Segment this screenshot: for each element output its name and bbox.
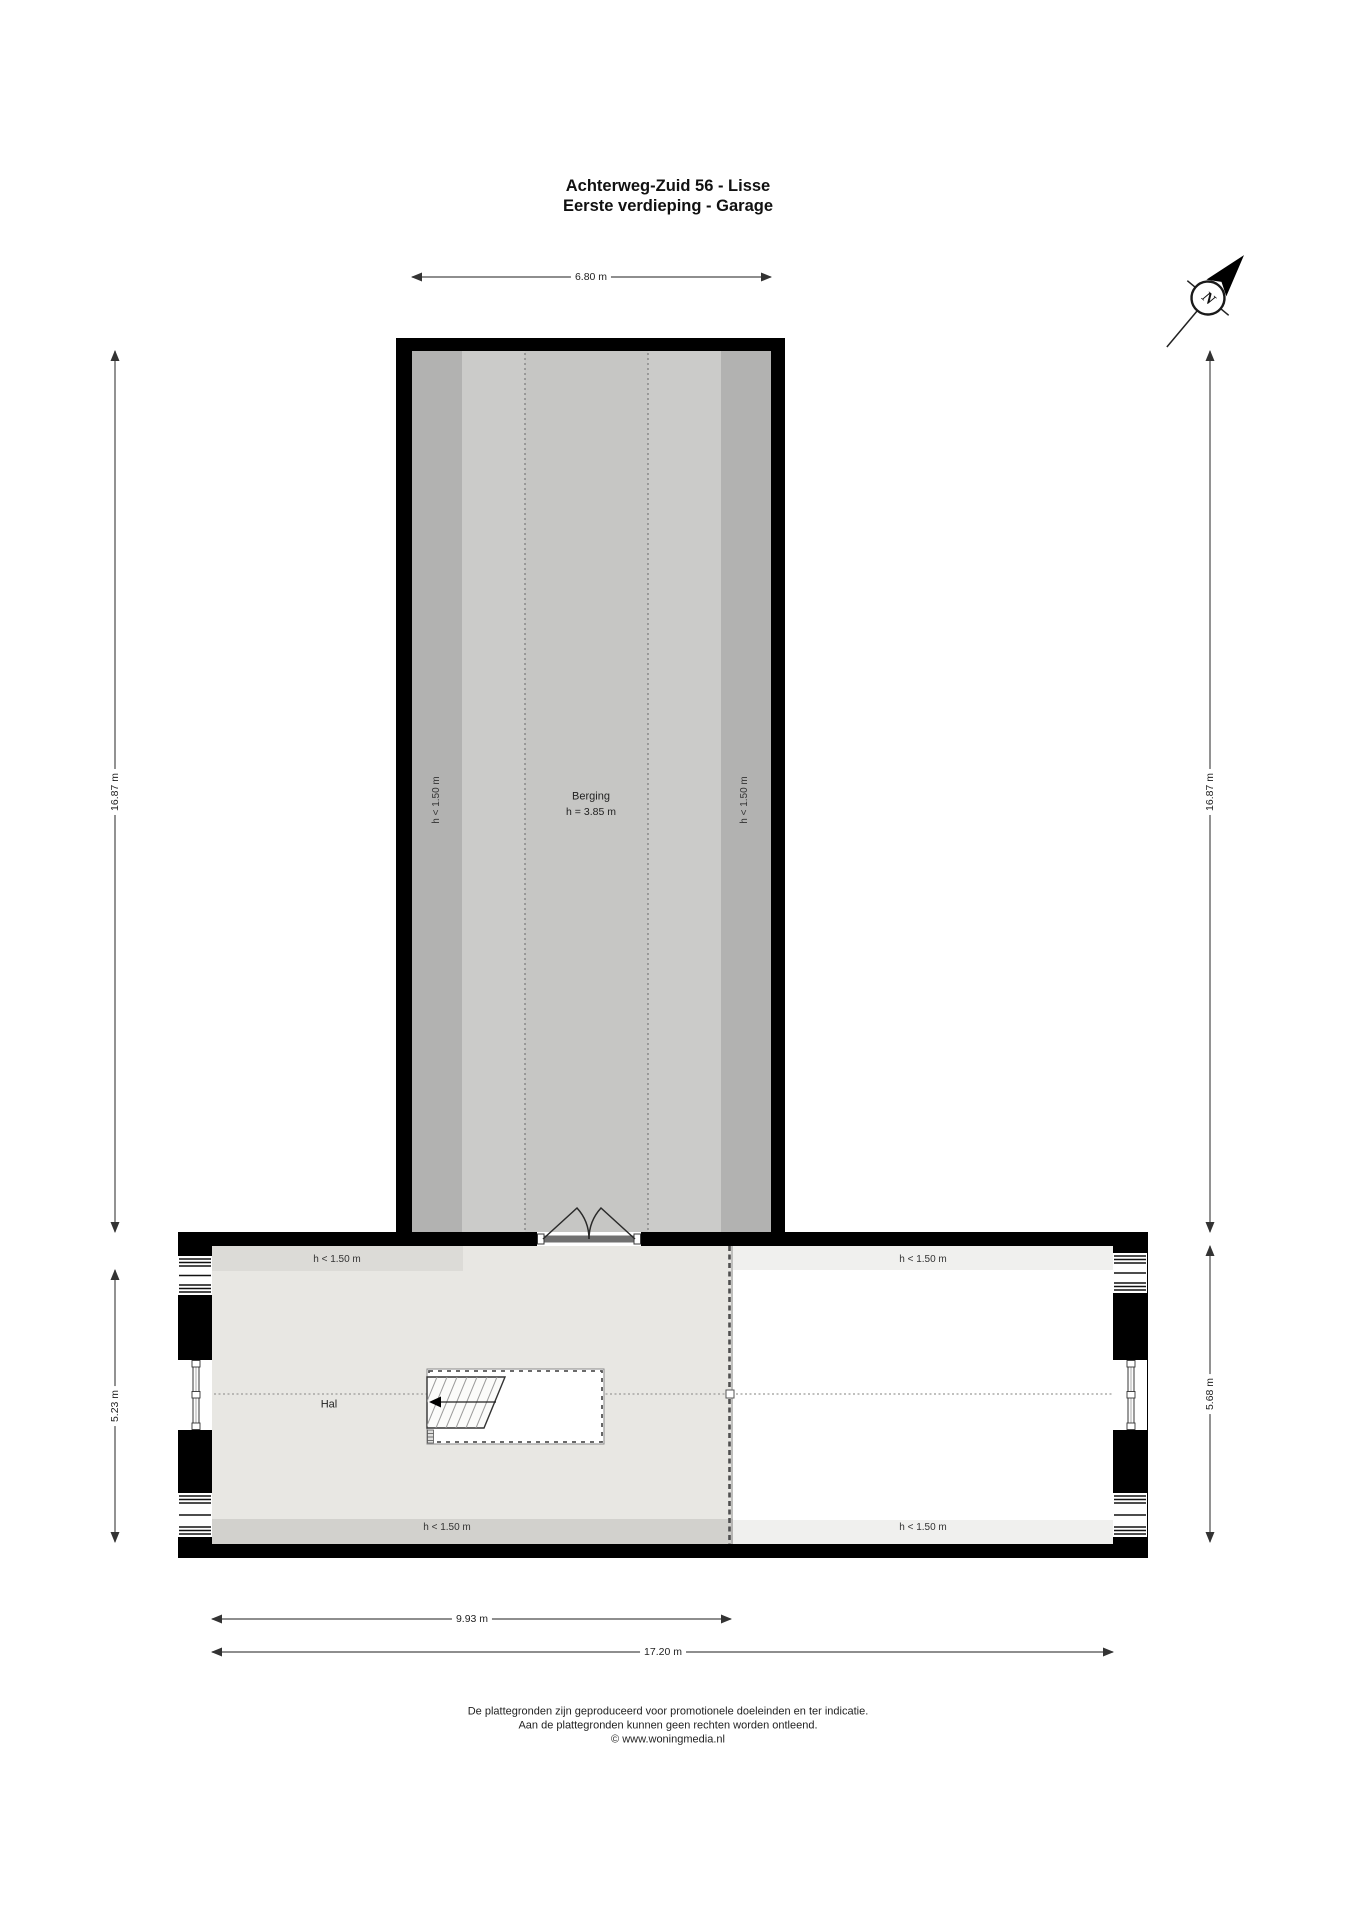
right-wall-window-top: [1113, 1253, 1147, 1293]
floor-plan-page: Achterweg-Zuid 56 - Lisse Eerste verdiep…: [0, 0, 1358, 1920]
berging-low-headroom-right: h < 1.50 m: [740, 776, 750, 824]
berging-ceiling-height-label: h = 3.85 m: [566, 807, 616, 818]
right-section-low-headroom-top: h < 1.50 m: [899, 1255, 947, 1265]
left-wall-window-bottom: [178, 1493, 212, 1537]
dim-label-berging-width: 6.80 m: [571, 271, 611, 284]
right-wall-door: [1113, 1360, 1147, 1430]
berging-room-label: Berging: [572, 792, 610, 803]
dim-label-right-lower: 5.68 m: [1204, 1374, 1217, 1414]
partition-node: [726, 1390, 734, 1398]
dim-label-right-upper: 16.87 m: [1204, 769, 1217, 815]
stairs: [416, 1369, 604, 1444]
hal-low-strip-bottom: [212, 1519, 733, 1544]
berging-low-headroom-left: h < 1.50 m: [432, 776, 442, 824]
right-wall-window-bottom: [1113, 1493, 1147, 1537]
dim-label-total-width: 17.20 m: [640, 1646, 686, 1659]
dim-label-left-lower: 5.23 m: [109, 1386, 122, 1426]
dim-label-left-upper: 16.87 m: [109, 769, 122, 815]
floor-plan-drawing: [0, 0, 1358, 1920]
right-section-low-headroom-bottom: h < 1.50 m: [899, 1523, 947, 1533]
footer-disclaimer-line1: De plattegronden zijn geproduceerd voor …: [468, 1707, 869, 1718]
compass-tail: [1167, 310, 1198, 347]
footer-copyright: © www.woningmedia.nl: [611, 1735, 725, 1746]
stair-newel: [428, 1430, 434, 1443]
footer-disclaimer-line2: Aan de plattegronden kunnen geen rechten…: [518, 1721, 817, 1732]
hal-low-headroom-top: h < 1.50 m: [313, 1255, 361, 1265]
dim-label-hal-width: 9.93 m: [452, 1613, 492, 1626]
hal-room-label: Hal: [321, 1400, 338, 1411]
left-wall-window-top: [178, 1256, 212, 1295]
left-wall-door: [178, 1360, 212, 1430]
hal-low-headroom-bottom: h < 1.50 m: [423, 1523, 471, 1533]
page-title-line2: Eerste verdieping - Garage: [563, 198, 773, 215]
page-title-line1: Achterweg-Zuid 56 - Lisse: [566, 178, 770, 195]
right-section-floor: [733, 1246, 1113, 1544]
